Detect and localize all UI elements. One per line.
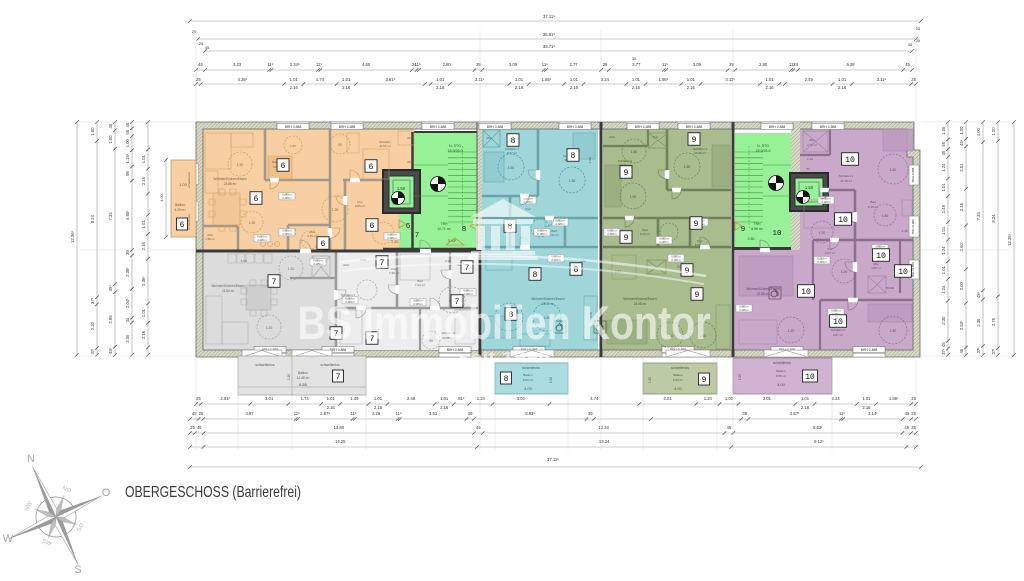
svg-text:6: 6 [281, 162, 286, 171]
svg-text:10.93 m²: 10.93 m² [694, 151, 706, 155]
svg-text:18.9/26.0: 18.9/26.0 [756, 149, 771, 153]
svg-text:39: 39 [468, 411, 473, 416]
svg-text:W: W [3, 533, 14, 545]
svg-text:12.34: 12.34 [598, 425, 609, 430]
svg-text:9.67 m²: 9.67 m² [833, 333, 843, 337]
svg-text:6.00 m²: 6.00 m² [523, 378, 533, 382]
svg-text:2.24: 2.24 [601, 77, 610, 82]
svg-text:1.36: 1.36 [807, 157, 813, 161]
svg-text:8.96 m²: 8.96 m² [751, 227, 763, 231]
svg-text:3.01: 3.01 [664, 396, 673, 401]
svg-text:6.36 m²: 6.36 m² [868, 205, 878, 209]
svg-text:2.16: 2.16 [374, 405, 383, 410]
svg-text:2.135 m: 2.135 m [555, 222, 564, 226]
svg-text:30: 30 [632, 56, 637, 61]
svg-text:45: 45 [941, 342, 946, 347]
svg-text:1.01: 1.01 [632, 77, 641, 82]
svg-text:5.00: 5.00 [777, 382, 786, 387]
svg-text:BRH 0.888: BRH 0.888 [567, 125, 584, 129]
svg-text:45: 45 [904, 425, 909, 430]
svg-text:1.01: 1.01 [570, 77, 579, 82]
svg-text:2.16: 2.16 [436, 85, 445, 90]
svg-text:12.36¹: 12.36¹ [70, 230, 75, 242]
svg-text:11⁵: 11⁵ [662, 62, 668, 67]
svg-text:1.50: 1.50 [397, 186, 406, 191]
svg-text:2.80: 2.80 [443, 62, 452, 67]
svg-text:1.01: 1.01 [941, 183, 946, 192]
svg-text:10: 10 [898, 268, 908, 277]
svg-text:2.04¹: 2.04¹ [125, 298, 130, 308]
svg-text:37¹: 37¹ [991, 348, 996, 355]
svg-text:3.61⁵: 3.61⁵ [385, 77, 395, 82]
svg-text:1.20: 1.20 [290, 144, 296, 148]
svg-text:4.00: 4.00 [160, 194, 164, 201]
svg-text:N. STG: N. STG [449, 144, 461, 148]
svg-text:1.01: 1.01 [687, 77, 696, 82]
svg-text:99: 99 [125, 171, 130, 176]
svg-text:13.80: 13.80 [334, 425, 345, 430]
svg-text:2.95: 2.95 [108, 315, 113, 324]
svg-text:1.01: 1.01 [327, 396, 336, 401]
svg-text:Abst: Abst [609, 135, 615, 139]
svg-text:Wohnen/Küchen/Essen: Wohnen/Küchen/Essen [213, 177, 246, 181]
svg-text:6: 6 [406, 223, 411, 231]
svg-text:2.16: 2.16 [632, 85, 641, 90]
svg-text:1.00: 1.00 [108, 135, 113, 144]
svg-text:2.135 m: 2.135 m [821, 200, 830, 204]
svg-text:S: S [74, 564, 81, 576]
svg-text:1.01: 1.01 [838, 77, 847, 82]
svg-text:2.16: 2.16 [838, 85, 847, 90]
svg-text:37¹: 37¹ [976, 347, 981, 354]
svg-text:39: 39 [476, 62, 481, 67]
svg-text:37.11⁵: 37.11⁵ [543, 14, 555, 19]
svg-text:Balkon: Balkon [776, 369, 786, 373]
svg-text:25: 25 [911, 425, 916, 430]
svg-text:Schlafen 1: Schlafen 1 [839, 174, 854, 178]
svg-text:1.20: 1.20 [788, 329, 795, 333]
svg-text:7.34: 7.34 [108, 212, 113, 221]
svg-text:2.135 m: 2.135 m [257, 238, 266, 242]
svg-text:8: 8 [511, 137, 516, 146]
svg-text:10: 10 [876, 252, 886, 261]
svg-text:1.00: 1.00 [90, 127, 95, 136]
svg-text:25: 25 [192, 29, 197, 34]
svg-text:9: 9 [624, 169, 629, 178]
svg-text:1.86¹: 1.86¹ [889, 396, 899, 401]
svg-text:2.80: 2.80 [759, 62, 768, 67]
svg-text:9: 9 [694, 220, 699, 229]
svg-text:4.74: 4.74 [590, 396, 599, 401]
svg-text:2.16: 2.16 [959, 202, 964, 211]
svg-text:2.16: 2.16 [141, 176, 146, 185]
svg-text:7.34: 7.34 [976, 212, 981, 221]
svg-text:8: 8 [504, 375, 509, 384]
svg-text:4.57 m²: 4.57 m² [825, 251, 835, 255]
svg-text:2.16: 2.16 [290, 85, 299, 90]
svg-text:25: 25 [196, 396, 201, 401]
svg-text:3.11⁵: 3.11⁵ [877, 77, 887, 82]
svg-text:7.64 m²: 7.64 m² [415, 283, 425, 287]
svg-text:9: 9 [702, 376, 707, 385]
svg-text:2.16: 2.16 [570, 85, 579, 90]
svg-text:Balkon: Balkon [523, 373, 533, 377]
svg-text:6.55: 6.55 [299, 382, 308, 387]
svg-text:1.50: 1.50 [631, 150, 638, 154]
svg-text:1.50: 1.50 [630, 195, 637, 199]
svg-text:2.16: 2.16 [687, 85, 696, 90]
svg-text:2.72 m²: 2.72 m² [807, 143, 817, 147]
svg-text:1.50: 1.50 [549, 377, 553, 383]
svg-text:1.50: 1.50 [890, 168, 897, 172]
svg-text:1.20: 1.20 [249, 221, 256, 225]
svg-text:BRH 0.888: BRH 0.888 [635, 125, 652, 129]
svg-text:25: 25 [916, 38, 921, 43]
svg-text:6: 6 [180, 221, 185, 230]
svg-text:45: 45 [905, 411, 910, 416]
svg-text:1.50: 1.50 [684, 165, 691, 169]
svg-text:BRH 0.888: BRH 0.888 [911, 167, 915, 182]
svg-text:1.50: 1.50 [508, 166, 515, 170]
svg-text:Balkon: Balkon [673, 373, 683, 377]
svg-text:1.86¹: 1.86¹ [542, 77, 552, 82]
svg-text:45: 45 [197, 425, 202, 430]
svg-text:BRH 0.888: BRH 0.888 [430, 125, 447, 129]
svg-text:3.11⁵: 3.11⁵ [725, 77, 735, 82]
svg-text:2.135 m: 2.135 m [313, 262, 322, 266]
svg-text:39: 39 [742, 411, 747, 416]
svg-text:2.135 m: 2.135 m [537, 232, 546, 236]
svg-text:Balkon: Balkon [298, 371, 308, 375]
svg-text:1.90: 1.90 [738, 374, 742, 380]
svg-text:37¹: 37¹ [941, 348, 946, 355]
svg-text:schwellenlos: schwellenlos [522, 366, 540, 370]
svg-text:BRH 0.888: BRH 0.888 [285, 125, 302, 129]
svg-text:3.09: 3.09 [509, 62, 518, 67]
svg-text:11⁵: 11⁵ [267, 62, 273, 67]
svg-text:2.135 m: 2.135 m [739, 308, 748, 312]
svg-text:3.23: 3.23 [233, 62, 242, 67]
svg-text:90: 90 [338, 143, 342, 147]
svg-text:Schlafen 2: Schlafen 2 [831, 328, 846, 332]
svg-text:O: O [102, 487, 111, 499]
svg-text:45: 45 [727, 425, 732, 430]
svg-text:25: 25 [196, 77, 201, 82]
svg-text:1.01: 1.01 [342, 77, 351, 82]
svg-text:schwellenlos: schwellenlos [773, 361, 791, 365]
svg-text:10.71 m²: 10.71 m² [437, 227, 451, 231]
svg-text:2.26: 2.26 [445, 259, 451, 263]
svg-text:12.45 m²: 12.45 m² [297, 376, 310, 380]
svg-text:2.34⁵: 2.34⁵ [290, 62, 300, 67]
svg-text:8: 8 [533, 271, 538, 280]
svg-text:8.63¹: 8.63¹ [813, 425, 823, 430]
svg-text:4.39: 4.39 [247, 248, 253, 252]
svg-text:45¹: 45¹ [108, 347, 113, 354]
svg-text:BRH 0.888: BRH 0.888 [861, 348, 878, 352]
svg-text:45: 45 [192, 411, 197, 416]
svg-text:45: 45 [198, 62, 203, 67]
svg-text:1.49: 1.49 [941, 204, 946, 213]
svg-text:12.36¹: 12.36¹ [1007, 233, 1012, 245]
svg-text:1.00: 1.00 [959, 126, 964, 135]
svg-text:5.28: 5.28 [846, 62, 855, 67]
svg-text:23.84 m²: 23.84 m² [222, 289, 235, 293]
svg-text:1.20: 1.20 [237, 163, 244, 167]
svg-text:1.20: 1.20 [332, 208, 339, 212]
svg-text:1.50: 1.50 [569, 179, 576, 183]
svg-text:2.61⁵: 2.61⁵ [221, 396, 231, 401]
svg-text:10: 10 [801, 288, 811, 297]
svg-text:Abst: Abst [407, 160, 413, 164]
svg-text:39: 39 [729, 62, 734, 67]
svg-text:Abst: Abst [407, 136, 413, 140]
svg-text:2.135 m: 2.135 m [282, 232, 291, 236]
svg-text:1.20: 1.20 [288, 267, 295, 271]
svg-text:3.09: 3.09 [693, 62, 702, 67]
svg-text:2.44¹: 2.44¹ [902, 229, 909, 233]
svg-text:8: 8 [571, 152, 576, 161]
svg-text:2.40¹: 2.40¹ [391, 240, 398, 244]
svg-text:2.135 m: 2.135 m [659, 240, 668, 244]
svg-text:25: 25 [916, 26, 921, 31]
svg-text:schwellenlos: schwellenlos [187, 171, 191, 187]
svg-text:4.60¹: 4.60¹ [588, 157, 592, 164]
svg-text:1.74: 1.74 [316, 77, 325, 82]
svg-text:1.01: 1.01 [141, 308, 146, 317]
svg-text:8.24: 8.24 [991, 214, 996, 223]
svg-text:10: 10 [838, 216, 848, 225]
svg-text:1.01: 1.01 [141, 220, 146, 229]
svg-text:9.37 m²: 9.37 m² [507, 151, 517, 155]
svg-text:7.39 m²: 7.39 m² [389, 271, 399, 275]
svg-text:1.00: 1.00 [125, 138, 130, 147]
svg-text:1.49: 1.49 [350, 396, 359, 401]
svg-text:10: 10 [845, 156, 855, 165]
svg-text:36.61⁵: 36.61⁵ [543, 32, 555, 37]
svg-text:2.135 m: 2.135 m [282, 196, 291, 200]
svg-text:2.75: 2.75 [991, 317, 996, 326]
svg-text:3.14¹: 3.14¹ [868, 411, 878, 416]
svg-text:1.90: 1.90 [287, 374, 291, 381]
svg-text:1.00: 1.00 [976, 127, 981, 136]
svg-text:1.00: 1.00 [941, 126, 946, 135]
svg-text:2.26: 2.26 [372, 411, 381, 416]
svg-text:Wohnen/Küchen/Essen: Wohnen/Küchen/Essen [746, 287, 779, 291]
svg-text:2.135 m: 2.135 m [607, 232, 616, 236]
svg-text:45: 45 [476, 425, 481, 430]
svg-text:45: 45 [905, 62, 910, 67]
svg-text:25: 25 [190, 425, 195, 430]
svg-text:1.50: 1.50 [890, 329, 897, 333]
svg-text:24: 24 [793, 62, 798, 67]
svg-text:2.135 m: 2.135 m [817, 260, 826, 264]
svg-text:10: 10 [805, 373, 815, 382]
svg-text:1.50: 1.50 [805, 185, 814, 190]
svg-text:7: 7 [336, 373, 341, 382]
svg-text:2.16: 2.16 [440, 405, 449, 410]
svg-text:25: 25 [199, 411, 204, 416]
svg-text:2.16: 2.16 [141, 330, 146, 339]
svg-text:1.15⁵: 1.15⁵ [125, 153, 130, 163]
svg-text:2.49: 2.49 [805, 77, 814, 82]
svg-text:22.88 m²: 22.88 m² [757, 292, 770, 296]
svg-text:6.61 m²: 6.61 m² [549, 233, 559, 237]
svg-text:1.20: 1.20 [266, 326, 273, 330]
svg-text:11⁵: 11⁵ [415, 62, 421, 67]
svg-text:Bad: Bad [870, 200, 876, 204]
svg-text:6: 6 [369, 163, 374, 172]
svg-text:2.49: 2.49 [407, 396, 416, 401]
svg-text:2.87⁵: 2.87⁵ [320, 411, 330, 416]
svg-text:9: 9 [624, 234, 629, 243]
svg-text:14.25: 14.25 [335, 439, 346, 444]
svg-text:14.18 m²: 14.18 m² [840, 179, 852, 183]
svg-text:BRH 0.888: BRH 0.888 [911, 219, 915, 234]
svg-text:1.24: 1.24 [941, 285, 946, 294]
svg-text:4.87: 4.87 [245, 411, 254, 416]
svg-text:1.01: 1.01 [862, 396, 871, 401]
svg-text:1.20: 1.20 [841, 270, 848, 274]
svg-text:8.24: 8.24 [90, 214, 95, 223]
svg-text:7: 7 [465, 264, 470, 273]
svg-text:18.9/26.0: 18.9/26.0 [448, 149, 463, 153]
svg-text:1.50: 1.50 [648, 377, 652, 383]
svg-text:2.30: 2.30 [941, 316, 946, 325]
svg-text:3.11⁵: 3.11⁵ [475, 77, 485, 82]
svg-text:4.87¹: 4.87¹ [790, 411, 800, 416]
svg-text:3.45 m²: 3.45 m² [307, 234, 317, 238]
svg-text:BRH 0.888: BRH 0.888 [769, 125, 786, 129]
svg-text:BRH 0.888: BRH 0.888 [686, 125, 703, 129]
svg-text:11⁵: 11⁵ [351, 411, 357, 416]
svg-text:55: 55 [941, 141, 946, 146]
svg-text:BS Immobilien Kontor: BS Immobilien Kontor [298, 296, 711, 349]
svg-text:39: 39 [588, 411, 593, 416]
svg-text:11⁵: 11⁵ [316, 62, 322, 67]
svg-text:BRH 0.888: BRH 0.888 [487, 125, 504, 129]
svg-text:4.00: 4.00 [674, 386, 683, 391]
svg-text:9: 9 [741, 226, 746, 234]
svg-text:4.00: 4.00 [524, 386, 533, 391]
svg-text:6.00 m²: 6.00 m² [673, 378, 683, 382]
svg-text:Abst: Abst [343, 263, 349, 267]
svg-text:35.71⁵: 35.71⁵ [543, 44, 555, 49]
svg-text:1.24: 1.24 [477, 396, 486, 401]
svg-text:2.16: 2.16 [515, 85, 524, 90]
svg-text:5.93⁵: 5.93⁵ [525, 411, 535, 416]
svg-text:10: 10 [833, 318, 843, 327]
svg-text:BRH 0.888: BRH 0.888 [820, 125, 837, 129]
svg-text:Wohnen/Küchen/Essen: Wohnen/Küchen/Essen [211, 284, 244, 288]
svg-text:TRH: TRH [441, 222, 449, 226]
svg-text:2.30: 2.30 [125, 334, 130, 343]
svg-text:N. STG: N. STG [757, 144, 769, 148]
svg-text:4.90¹: 4.90¹ [125, 210, 130, 220]
svg-text:23.88 m²: 23.88 m² [224, 182, 237, 186]
svg-text:11⁵: 11⁵ [396, 411, 402, 416]
svg-text:1.01: 1.01 [765, 77, 774, 82]
svg-text:2.135 m: 2.135 m [671, 258, 680, 262]
svg-text:1.00: 1.00 [725, 396, 734, 401]
svg-text:34: 34 [125, 317, 130, 322]
svg-text:2.30: 2.30 [90, 321, 95, 330]
svg-text:45: 45 [941, 150, 946, 155]
svg-text:39: 39 [603, 62, 608, 67]
svg-text:2.16: 2.16 [327, 405, 336, 410]
svg-text:6.24 m²: 6.24 m² [640, 232, 650, 236]
svg-text:1.01: 1.01 [141, 154, 146, 163]
svg-text:1.01: 1.01 [440, 396, 449, 401]
svg-text:45: 45 [108, 123, 113, 128]
svg-text:7: 7 [272, 278, 277, 287]
svg-text:1.58 m²: 1.58 m² [205, 237, 215, 241]
svg-text:8: 8 [462, 226, 467, 234]
svg-text:1.86¹: 1.86¹ [659, 77, 669, 82]
svg-text:37¹: 37¹ [90, 297, 95, 304]
svg-text:45⁵: 45⁵ [976, 291, 981, 298]
svg-text:11⁵: 11⁵ [542, 62, 548, 67]
svg-text:2.51: 2.51 [959, 163, 964, 172]
svg-text:3.01: 3.01 [517, 396, 526, 401]
svg-text:2.63⁵: 2.63⁵ [959, 320, 964, 330]
svg-text:4.00 m²: 4.00 m² [175, 208, 186, 212]
svg-text:2.77: 2.77 [569, 62, 578, 67]
svg-text:1.74: 1.74 [301, 396, 310, 401]
svg-text:9.50 m²: 9.50 m² [776, 374, 786, 378]
svg-text:1.01: 1.01 [290, 77, 299, 82]
svg-text:45: 45 [959, 348, 964, 353]
svg-text:1.24: 1.24 [704, 396, 713, 401]
svg-text:45¹: 45¹ [108, 285, 113, 292]
svg-text:2.16: 2.16 [141, 242, 146, 251]
svg-text:OBERGESCHOSS (Barrierefrei): OBERGESCHOSS (Barrierefrei) [125, 484, 301, 501]
svg-text:1.50: 1.50 [882, 214, 889, 218]
svg-text:2.16: 2.16 [342, 85, 351, 90]
svg-text:3.01: 3.01 [763, 396, 772, 401]
svg-text:1.00: 1.00 [179, 183, 186, 187]
svg-text:Flur: Flur [525, 207, 530, 211]
svg-text:2.30: 2.30 [976, 318, 981, 327]
svg-text:9: 9 [692, 136, 697, 145]
svg-text:55: 55 [125, 129, 130, 134]
svg-text:TRH: TRH [754, 222, 762, 226]
svg-text:2.24: 2.24 [832, 396, 841, 401]
svg-text:7: 7 [415, 232, 420, 240]
svg-text:37¹: 37¹ [90, 348, 95, 355]
svg-text:4.36¹: 4.36¹ [238, 77, 248, 82]
svg-text:5.93¹: 5.93¹ [241, 259, 248, 263]
svg-text:4.89 m²: 4.89 m² [871, 266, 881, 270]
svg-text:TV: TV [806, 167, 810, 171]
svg-text:11⁵: 11⁵ [839, 411, 845, 416]
svg-text:1.01: 1.01 [941, 265, 946, 274]
svg-text:2.00: 2.00 [959, 281, 964, 290]
svg-text:9.12¹: 9.12¹ [814, 439, 824, 444]
svg-text:1.01: 1.01 [374, 396, 383, 401]
svg-text:45: 45 [125, 122, 130, 127]
svg-text:1.01: 1.01 [515, 77, 524, 82]
svg-text:6: 6 [254, 195, 259, 204]
svg-text:10: 10 [772, 230, 782, 238]
svg-text:1.01: 1.01 [436, 77, 445, 82]
svg-text:1.24: 1.24 [941, 246, 946, 255]
svg-text:schwellenlos: schwellenlos [255, 363, 275, 367]
svg-text:6: 6 [370, 222, 375, 231]
svg-text:2.80: 2.80 [748, 237, 755, 241]
svg-text:11.53 m²: 11.53 m² [379, 144, 391, 148]
svg-text:3.51: 3.51 [429, 411, 438, 416]
